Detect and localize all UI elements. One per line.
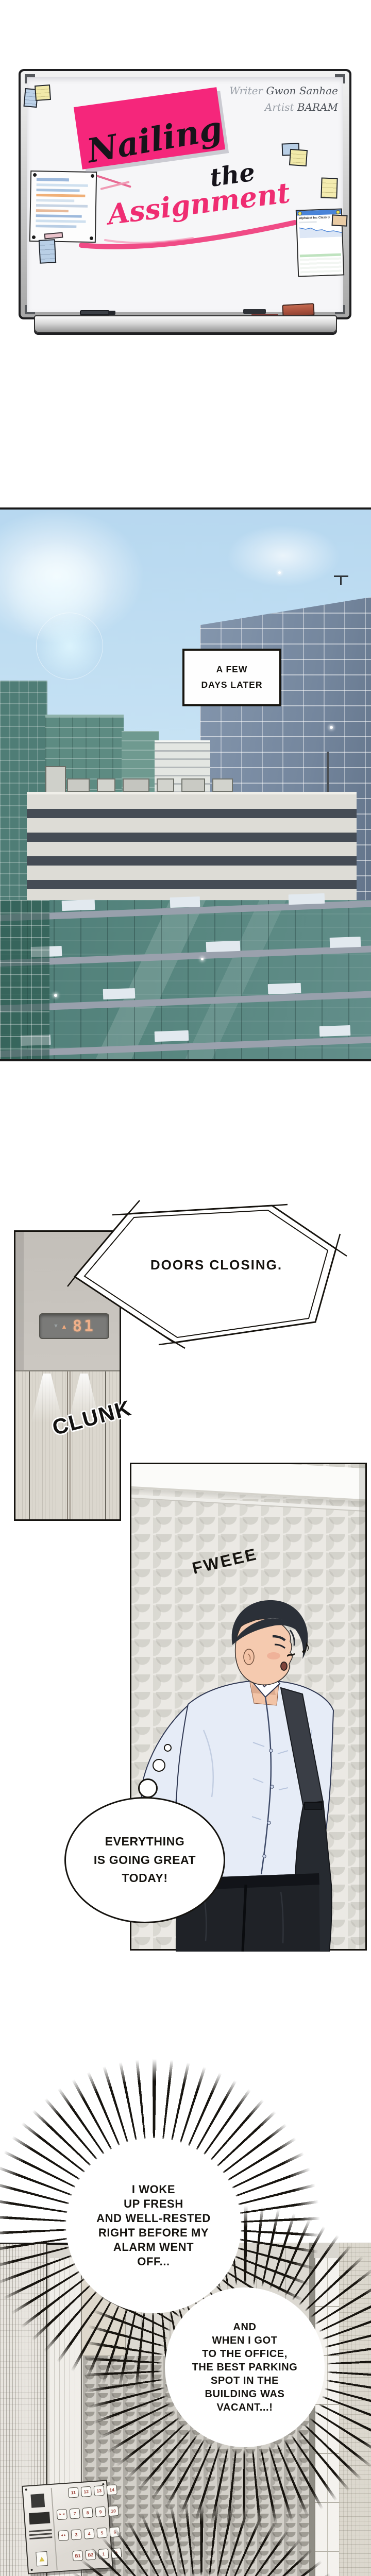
light-pole: [327, 752, 329, 793]
sticky-note-yellow: [321, 177, 338, 198]
speaker-line: [29, 2533, 52, 2536]
city-panel: A FEW DAYS LATER: [0, 507, 371, 1061]
foreground-facade: [0, 900, 371, 1061]
panel-speaker: [29, 2512, 50, 2524]
credit-writer: Writer Gwon Sanhae: [214, 84, 338, 97]
up-arrow-icon: ▲: [61, 1323, 68, 1330]
writer-name: Gwon Sanhae: [266, 84, 338, 97]
whiteboard-panel: Writer Gwon Sanhae Artist BARAM: [19, 69, 351, 319]
artist-name: BARAM: [297, 101, 338, 113]
rooftop-door-block: [45, 766, 66, 793]
door-frame-line: [29, 1371, 30, 1521]
thought-chain-circle: [164, 1744, 172, 1752]
floor-button-12[interactable]: 12: [81, 2486, 92, 2497]
facade-corner: [0, 900, 49, 1061]
pin-icon: [33, 173, 37, 177]
rooftop-units: [67, 778, 263, 792]
door-split: [70, 1371, 71, 1521]
narration-burst-1: I WOKE UP FRESH AND WELL-RESTED RIGHT BE…: [66, 2138, 241, 2313]
panel-screw-icon: [30, 2569, 32, 2571]
panel-display-dark: [30, 2494, 45, 2508]
panel-divider: [51, 2488, 58, 2570]
key-switch[interactable]: [36, 2551, 48, 2566]
door-open-button[interactable]: ◄►: [58, 2530, 69, 2541]
floor-button-14[interactable]: 14: [107, 2484, 117, 2495]
narration-burst-2: AND WHEN I GOT TO THE OFFICE, THE BEST P…: [165, 2287, 325, 2447]
sticky-note-yellow: [289, 149, 308, 166]
pa-speech-bubble: [67, 1199, 356, 1352]
man-mouth-whistle: [281, 1662, 287, 1670]
sticky-note-blue: [39, 239, 56, 264]
man-ear: [244, 1649, 254, 1665]
lens-flare: [36, 613, 103, 680]
floor-button-8[interactable]: 8: [82, 2507, 93, 2518]
floor-button-10[interactable]: 10: [108, 2505, 119, 2516]
speaker-line: [29, 2536, 52, 2539]
cloud: [227, 525, 340, 587]
sticky-note-yellow: [35, 84, 51, 101]
floor-button-13[interactable]: 13: [94, 2485, 105, 2496]
door-close-button[interactable]: ►◄: [57, 2509, 68, 2520]
floor-button-11[interactable]: 11: [68, 2487, 79, 2498]
artist-label: Artist: [265, 101, 294, 113]
sticky-note-tan: [331, 214, 347, 227]
floor-button-9[interactable]: 9: [95, 2506, 106, 2517]
marker-dark: [243, 309, 266, 314]
stock-table: [300, 253, 342, 277]
pin-icon: [32, 235, 36, 239]
floor-button-row: ►◄ 7 8 9 10: [57, 2505, 119, 2520]
burst-1-text: I WOKE UP FRESH AND WELL-RESTED RIGHT BE…: [96, 2182, 211, 2269]
webtoon-page: Writer Gwon Sanhae Artist BARAM: [0, 0, 371, 2576]
thought-chain-circle: [153, 1759, 165, 1772]
strap-buckle: [305, 1802, 322, 1809]
pin-icon: [91, 174, 94, 178]
caption-box: A FEW DAYS LATER: [182, 649, 281, 706]
marker-cap: [108, 311, 115, 315]
parking-structure: [27, 792, 357, 901]
man-face: [235, 1619, 293, 1685]
door-frame-line: [105, 1371, 106, 1521]
thought-chain-circle: [138, 1778, 158, 1798]
panel-screw-icon: [25, 2488, 27, 2490]
pa-bubble-text: DOORS CLOSING.: [129, 1257, 304, 1273]
elevator-doors: [15, 1370, 120, 1521]
marker-small: [80, 310, 110, 315]
speaker-line: [29, 2529, 52, 2532]
writer-label: Writer: [229, 84, 263, 97]
floor-button-7[interactable]: 7: [70, 2508, 80, 2519]
rooftop-crane-icon: [340, 575, 342, 585]
floor-button-3[interactable]: 3: [71, 2529, 81, 2540]
burst-2-text: AND WHEN I GOT TO THE OFFICE, THE BEST P…: [192, 2320, 298, 2414]
credit-artist: Artist BARAM: [240, 101, 338, 113]
door-split: [67, 1371, 68, 1521]
floor-button-4[interactable]: 4: [83, 2528, 94, 2539]
down-arrow-icon: ▼: [53, 1323, 59, 1329]
man-blush: [267, 1652, 280, 1659]
title-underline-swoosh: [74, 219, 301, 251]
marker-tray: [34, 315, 337, 333]
thought-bubble: EVERYTHING IS GOING GREAT TODAY!: [64, 1797, 225, 1923]
